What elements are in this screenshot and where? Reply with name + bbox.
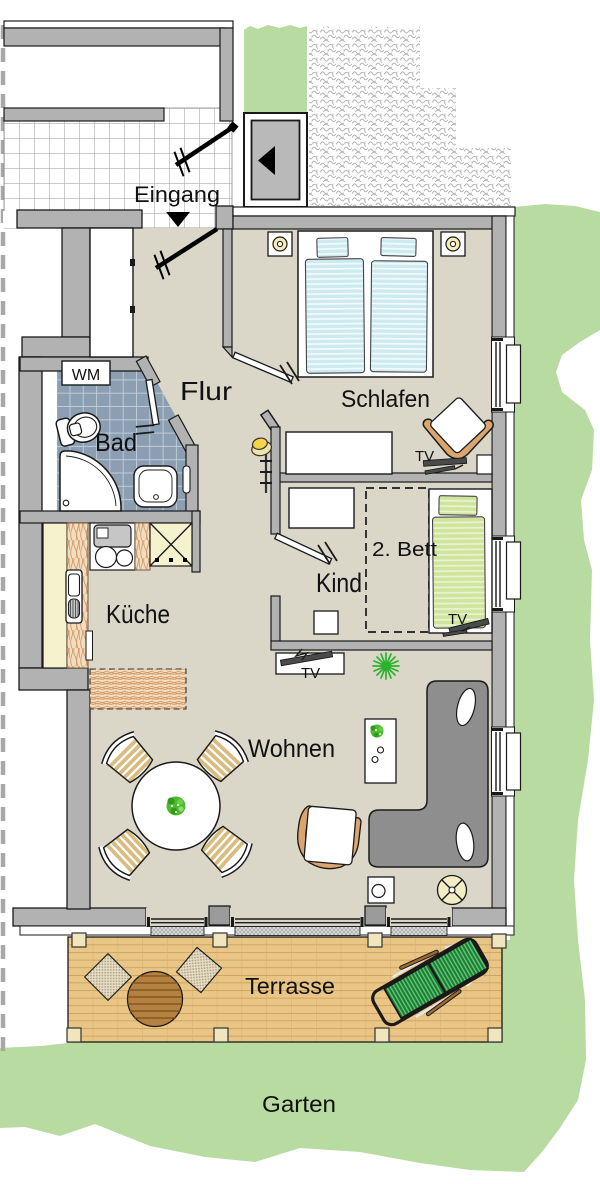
svg-text:Schlafen: Schlafen <box>341 386 430 413</box>
svg-text:Eingang: Eingang <box>134 182 220 207</box>
svg-text:WM: WM <box>72 367 100 384</box>
svg-text:Bad: Bad <box>95 429 137 457</box>
svg-text:Terrasse: Terrasse <box>245 973 335 999</box>
svg-text:TV: TV <box>415 448 434 465</box>
svg-text:TV: TV <box>448 611 467 628</box>
svg-text:Küche: Küche <box>106 599 170 629</box>
svg-text:2. Bett: 2. Bett <box>372 539 437 561</box>
svg-text:TV: TV <box>301 665 320 682</box>
svg-text:Flur: Flur <box>180 376 232 406</box>
svg-text:Garten: Garten <box>262 1091 336 1117</box>
svg-text:Kind: Kind <box>316 568 362 598</box>
svg-text:Wohnen: Wohnen <box>248 735 335 763</box>
